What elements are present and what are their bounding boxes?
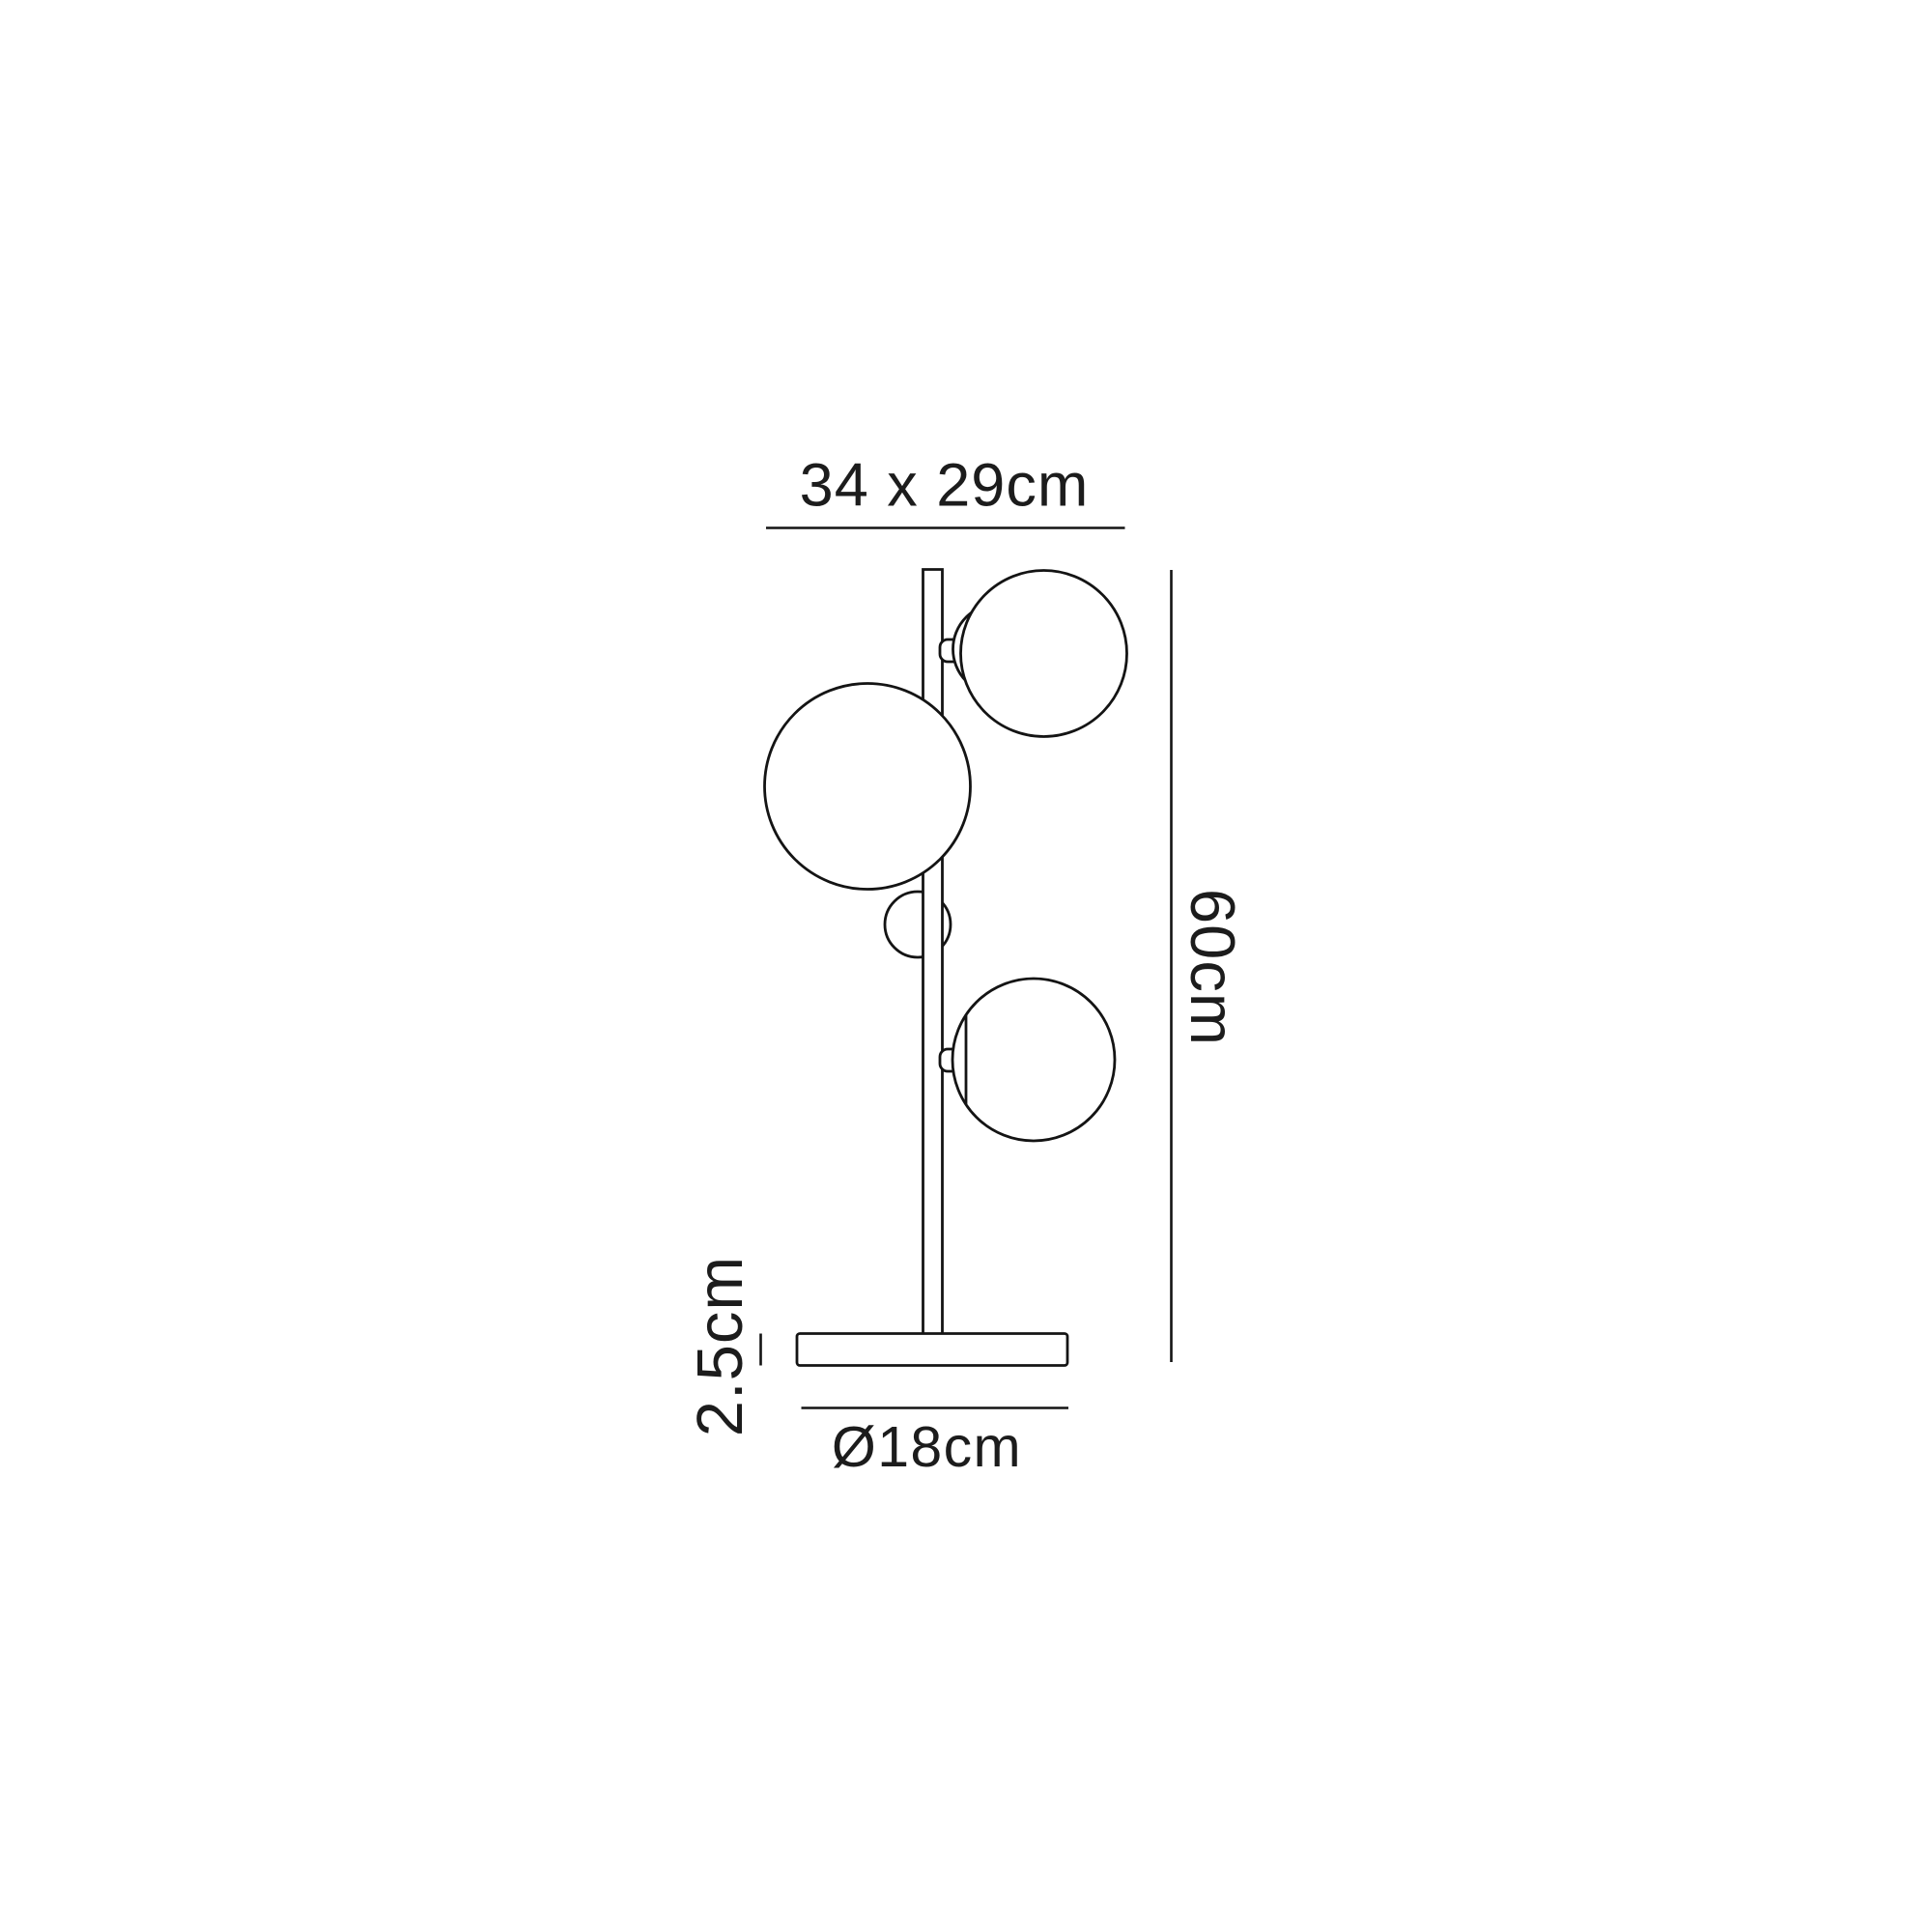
svg-text:2.5cm: 2.5cm [684,1256,756,1436]
svg-text:Ø18cm: Ø18cm [832,1415,1022,1479]
svg-text:60cm: 60cm [1178,889,1248,1046]
svg-text:34 x 29cm: 34 x 29cm [800,452,1090,520]
